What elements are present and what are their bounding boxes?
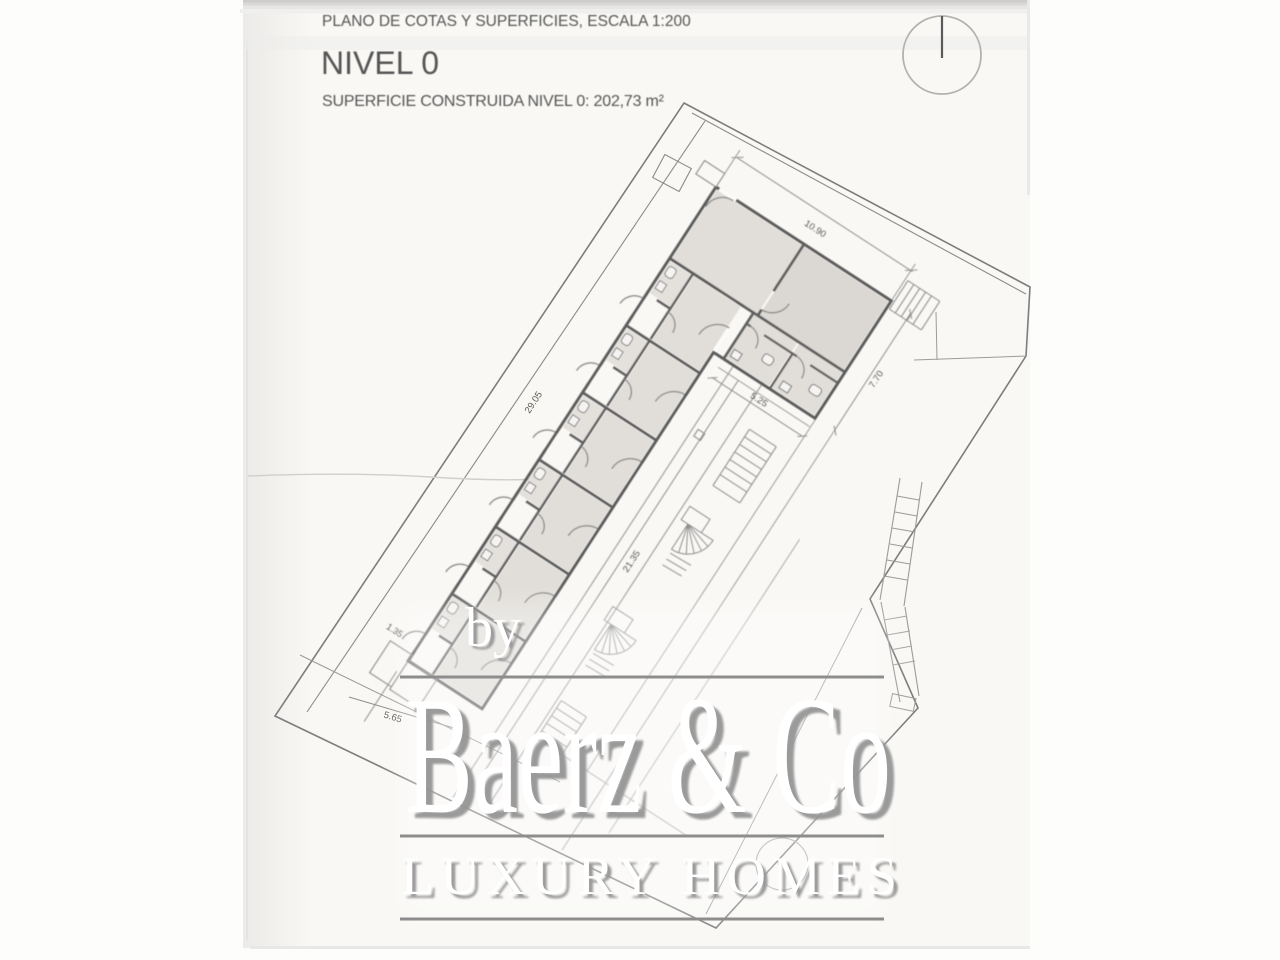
svg-text:SUPERFICIE CONSTRUIDA NIVEL 0:: SUPERFICIE CONSTRUIDA NIVEL 0: 202,73 m² xyxy=(322,93,665,110)
svg-text:by: by xyxy=(465,597,521,659)
svg-text:PLANO DE COTAS Y SUPERFICIES,: PLANO DE COTAS Y SUPERFICIES, ESCALA 1:2… xyxy=(322,13,691,30)
svg-text:NIVEL 0: NIVEL 0 xyxy=(321,45,439,81)
svg-text:Baerz & Co: Baerz & Co xyxy=(405,661,891,849)
